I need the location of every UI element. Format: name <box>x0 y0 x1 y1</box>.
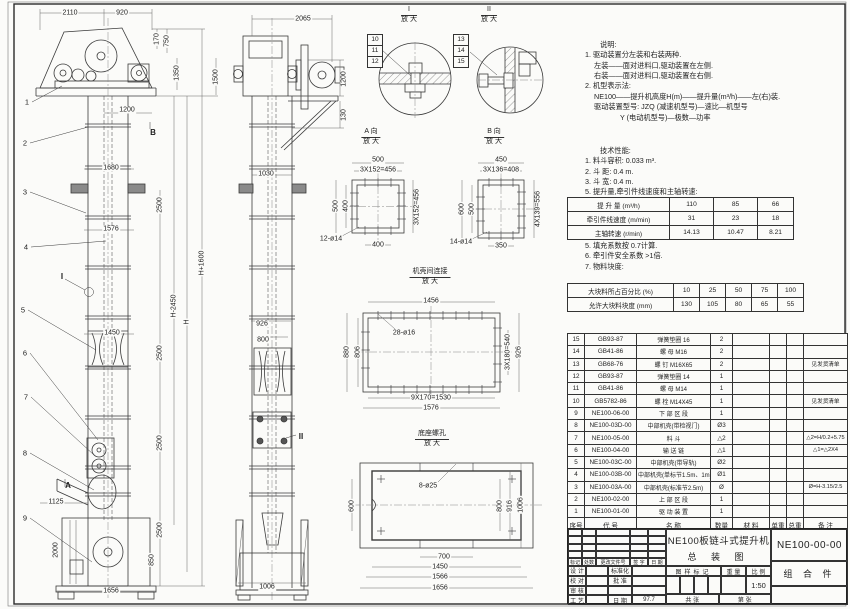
bom-row: 10 GB5782-86 螺 栓 M14X45 1 见发货清单 <box>568 395 848 407</box>
section-mark-label: I <box>60 273 64 281</box>
casing-joint-detail <box>347 302 519 408</box>
bom-unit-weight <box>770 444 787 456</box>
bom-qty: 1 <box>711 407 733 419</box>
weight-value <box>721 576 746 594</box>
bom-note <box>804 407 848 419</box>
detail-title: I 放 大 <box>401 6 417 25</box>
mark-header: 图样标记 <box>666 566 721 576</box>
dim-label: 2065 <box>294 16 312 23</box>
note-line: NE100——提升机高度H(m)——提升量(m³/h)——左(右)装. <box>594 92 780 102</box>
sign-label: 批 准 <box>608 576 632 586</box>
drawing-sheet: 2110 920 170 750 1350 1500 1200 B 1680 2… <box>0 0 850 609</box>
bom-row: 7 NE100-05-00 料 斗 △2 △2=H/0.2+5.75 <box>568 432 848 444</box>
balloon-box: 15 <box>453 56 469 68</box>
bom-code: NE100-05-00 <box>585 432 637 444</box>
detail-title: 机壳间连接 放 大 <box>410 268 451 287</box>
dim-label: 1656 <box>102 588 120 595</box>
bom-material <box>733 346 770 358</box>
revision-cell <box>648 529 666 536</box>
dim-label: 500 <box>371 157 385 164</box>
sign-label: 标准化 <box>608 566 632 576</box>
bom-material <box>733 493 770 505</box>
lump-cell: 55 <box>778 298 804 312</box>
dim-label: 3X136=408 <box>482 167 520 174</box>
bom-no: 2 <box>568 493 585 505</box>
tech-line: 6. 牵引件安全系数 >1倍. <box>585 251 663 261</box>
dim-label: 850 <box>149 553 156 567</box>
bom-name: 中部机壳(单标节1.5m、1m) <box>637 469 711 481</box>
bom-row: 11 GB41-86 螺 母 M14 1 <box>568 383 848 395</box>
bom-no: 13 <box>568 358 585 370</box>
bom-row: 8 NE100-03D-00 中部机壳(带检视门) Ø3 <box>568 420 848 432</box>
revision-cell <box>596 536 630 543</box>
balloon-box: 12 <box>367 56 383 68</box>
tech-notes-after: 5. 填充系数按 0.7计算. 6. 牵引件安全系数 >1倍. 7. 物料块度: <box>580 241 663 272</box>
dim-label: 916 <box>507 499 514 513</box>
bom-qty: △1 <box>711 444 733 456</box>
dim-label: 4X139=556 <box>535 190 542 228</box>
sign-cell <box>586 586 608 596</box>
bom-code: GB41-86 <box>585 346 637 358</box>
bom-no: 12 <box>568 370 585 382</box>
lump-cell: 允许大块料块度 (mm) <box>568 298 674 312</box>
revision-cell <box>568 529 582 536</box>
bom-qty: 1 <box>711 395 733 407</box>
bom-note <box>804 506 848 518</box>
bom-total-weight <box>787 444 804 456</box>
lump-cell: 大块料所占百分比 (%) <box>568 284 674 298</box>
dim-label: 1656 <box>431 585 449 592</box>
dim-label: 1450 <box>103 330 121 337</box>
dim-label: 1006 <box>258 584 276 591</box>
bom-name: 中部机壳(标准节2.5m) <box>637 481 711 493</box>
front-view <box>28 9 218 599</box>
revision-cell <box>648 536 666 543</box>
perf-cell: 8.21 <box>758 226 794 240</box>
dim-label: 450 <box>494 157 508 164</box>
bom-name: 弹簧垫圈 14 <box>637 370 711 382</box>
dim-label: 600 <box>349 499 356 513</box>
dim-label: H-2450 <box>171 294 178 319</box>
bom-row: 13 GB68-76 螺 钉 M16X65 2 见发货清单 <box>568 358 848 370</box>
dim-label: 1200 <box>118 107 136 114</box>
balloon-label: 1 <box>25 98 29 106</box>
sign-label: 审 核 <box>568 586 586 596</box>
bom-material <box>733 358 770 370</box>
lump-cell: 105 <box>700 298 726 312</box>
dim-label: 1576 <box>422 405 440 412</box>
bom-row: 15 GB93-87 弹簧垫圈 16 2 <box>568 334 848 346</box>
notes-heading: 说明: <box>600 40 780 50</box>
bom-material <box>733 506 770 518</box>
bom-no: 14 <box>568 346 585 358</box>
drawing-title-line1: NE100板链斗式提升机 <box>668 533 770 547</box>
bom-name: 料 斗 <box>637 432 711 444</box>
detail-ii <box>470 47 543 113</box>
bom-code: NE100-06-00 <box>585 407 637 419</box>
bom-total-weight <box>787 481 804 493</box>
bom-material <box>733 456 770 468</box>
sheet-number: 第 张 <box>719 594 772 605</box>
bom-total-weight <box>787 346 804 358</box>
bom-material <box>733 395 770 407</box>
dim-label: 2110 <box>61 10 78 17</box>
tech-panel: 技术性能: 1. 料斗容积: 0.033 m³. 2. 斗 距: 0.4 m. … <box>580 146 698 198</box>
table-row: 提 升 量 (m³/h) 110 85 66 <box>568 198 794 212</box>
dim-label: 500 <box>469 202 476 216</box>
perf-cell: 23 <box>714 212 758 226</box>
table-row: 主轴转速 (r/min) 14.13 10.47 8.21 <box>568 226 794 240</box>
dim-label: 28-ø16 <box>392 330 416 337</box>
dim-label: 800 <box>256 337 270 344</box>
bom-no: 11 <box>568 383 585 395</box>
bom-material <box>733 444 770 456</box>
bom-row: 1 NE100-01-00 驱 动 装 置 1 <box>568 506 848 518</box>
dim-label: 130 <box>341 108 348 122</box>
bom-total-weight <box>787 358 804 370</box>
sign-cell <box>632 576 666 586</box>
bom-unit-weight <box>770 395 787 407</box>
bom-no: 6 <box>568 444 585 456</box>
dim-label: 1500 <box>213 68 220 86</box>
bom-unit-weight <box>770 506 787 518</box>
bom-code: GB93-87 <box>585 370 637 382</box>
tech-heading: 技术性能: <box>600 146 698 156</box>
revision-cell <box>648 544 666 551</box>
lump-cell: 80 <box>726 298 752 312</box>
bom-total-weight <box>787 493 804 505</box>
bom-code: GB93-87 <box>585 334 637 346</box>
revision-cell <box>568 551 582 558</box>
bom-no: 1 <box>568 506 585 518</box>
dim-label: 14-ø14 <box>449 239 473 246</box>
bom-qty: 2 <box>711 358 733 370</box>
dim-label: 2500 <box>157 521 164 539</box>
lump-cell: 100 <box>778 284 804 298</box>
detail-i <box>379 42 451 118</box>
empty-cell <box>771 586 848 605</box>
revision-cell <box>596 529 630 536</box>
bom-unit-weight <box>770 358 787 370</box>
bom-total-weight <box>787 469 804 481</box>
drawing-title: NE100板链斗式提升机 总 装 图 <box>666 529 771 566</box>
perf-cell: 提 升 量 (m³/h) <box>568 198 670 212</box>
dim-label: 400 <box>343 199 350 213</box>
bom-qty: 1 <box>711 493 733 505</box>
bom-total-weight <box>787 383 804 395</box>
bom-code: GB68-76 <box>585 358 637 370</box>
bom-note <box>804 334 848 346</box>
bom-name: 螺 钉 M16X65 <box>637 358 711 370</box>
revision-cell <box>582 536 596 543</box>
detail-subtitle: 放 大 <box>422 278 438 285</box>
balloon-label: 6 <box>23 349 27 357</box>
bom-unit-weight <box>770 432 787 444</box>
note-line: Y (电动机型号)—极数—功率 <box>620 113 780 123</box>
bom-code: NE100-03A-00 <box>585 481 637 493</box>
bom-row: 2 NE100-02-00 上 部 区 段 1 <box>568 493 848 505</box>
revision-cell <box>582 529 596 536</box>
bom-code: NE100-04-00 <box>585 444 637 456</box>
perf-cell: 110 <box>670 198 714 212</box>
bom-code: GB41-86 <box>585 383 637 395</box>
dim-label: 9X170=1530 <box>410 395 452 402</box>
bom-total-weight <box>787 334 804 346</box>
bom-no: 4 <box>568 469 585 481</box>
bom-qty: 1 <box>711 506 733 518</box>
mark-box <box>666 576 680 594</box>
bom-code: NE100-02-00 <box>585 493 637 505</box>
bom-note <box>804 370 848 382</box>
table-row: 允许大块料块度 (mm) 130 105 80 65 55 <box>568 298 804 312</box>
bom-qty: 1 <box>711 370 733 382</box>
revision-cell <box>630 544 648 551</box>
perf-cell: 主轴转速 (r/min) <box>568 226 670 240</box>
revision-cell <box>648 551 666 558</box>
drawing-number: NE100-00-00 <box>771 529 848 561</box>
perf-cell: 66 <box>758 198 794 212</box>
sign-cell <box>586 595 608 605</box>
dim-label: 8-ø25 <box>418 483 438 490</box>
bom-note <box>804 420 848 432</box>
tech-line: 1. 料斗容积: 0.033 m³. <box>585 156 698 166</box>
bom-qty: 1 <box>711 383 733 395</box>
dim-label: 800 <box>497 499 504 513</box>
revision-cell <box>596 551 630 558</box>
bom-note: 见发货清单 <box>804 358 848 370</box>
lump-cell: 75 <box>752 284 778 298</box>
dim-label: 2500 <box>157 434 164 452</box>
revision-cell <box>630 536 648 543</box>
sign-cell <box>586 566 608 576</box>
bom-total-weight <box>787 420 804 432</box>
bom-qty: Ø <box>711 481 733 493</box>
lump-cell: 10 <box>674 284 700 298</box>
dim-label: 926 <box>516 345 523 359</box>
sign-label: 设 计 <box>568 566 586 576</box>
part-type: 组 合 件 <box>771 561 848 586</box>
bom-code: GB5782-86 <box>585 395 637 407</box>
bom-unit-weight <box>770 407 787 419</box>
bom-name: 螺 栓 M14X45 <box>637 395 711 407</box>
bom-material <box>733 432 770 444</box>
bom-no: 8 <box>568 420 585 432</box>
mark-box <box>680 576 694 594</box>
view-mark-label: A <box>64 482 72 490</box>
balloon-label: 3 <box>23 188 27 196</box>
note-line: 左装——面对进料口,驱动装置在左侧. <box>594 61 780 71</box>
dim-label: 500 <box>333 199 340 213</box>
dim-label: 350 <box>494 243 508 250</box>
bom-code: NE100-03B-00 <box>585 469 637 481</box>
side-view <box>234 15 345 600</box>
bom-no: 10 <box>568 395 585 407</box>
note-line: 2. 机型表示法: <box>585 81 780 91</box>
detail-title: A 向 放 大 <box>361 128 380 147</box>
section-mark-label: II <box>298 433 304 441</box>
lump-cell: 50 <box>726 284 752 298</box>
bom-row: 5 NE100-03C-00 中部机壳(带导轨) Ø2 <box>568 456 848 468</box>
detail-subtitle: 放 大 <box>401 16 417 23</box>
mark-box <box>708 576 721 594</box>
bom-no: 3 <box>568 481 585 493</box>
bom-qty: 2 <box>711 346 733 358</box>
bom-name: 驱 动 装 置 <box>637 506 711 518</box>
revision-cell <box>568 536 582 543</box>
sheet-count: 共 张 <box>666 594 719 605</box>
bom-note: △2=H/0.2+5.75 <box>804 432 848 444</box>
dim-label: 1450 <box>431 564 449 571</box>
bom-name: 螺 母 M14 <box>637 383 711 395</box>
revision-cell <box>630 551 648 558</box>
sign-label: 日 期 <box>608 595 632 605</box>
dim-label: 1030 <box>257 171 275 178</box>
revision-cell <box>568 544 582 551</box>
bom-table: 15 GB93-87 弹簧垫圈 16 2 14 GB41-86 螺 母 M16 … <box>567 333 848 532</box>
weight-header: 重 量 <box>721 566 746 576</box>
tech-line: 5. 填充系数按 0.7计算. <box>585 241 663 251</box>
dim-label: 2500 <box>157 196 164 214</box>
dim-label: 700 <box>437 554 451 561</box>
bom-name: 中部机壳(带检视门) <box>637 420 711 432</box>
bom-no: 15 <box>568 334 585 346</box>
bom-material <box>733 334 770 346</box>
revision-header: 签 字 <box>630 558 648 566</box>
bom-name: 中部机壳(带导轨) <box>637 456 711 468</box>
bom-total-weight <box>787 432 804 444</box>
bom-name: 下 部 区 段 <box>637 407 711 419</box>
revision-header: 标记 <box>568 558 582 566</box>
revision-cell <box>596 544 630 551</box>
dim-label: 1125 <box>47 499 64 506</box>
revision-header: 更改文件号 <box>596 558 630 566</box>
bom-material <box>733 481 770 493</box>
bom-no: 9 <box>568 407 585 419</box>
dim-label: 920 <box>115 10 129 17</box>
detail-title: II 放 大 <box>481 6 497 25</box>
bom-row: 9 NE100-06-00 下 部 区 段 1 <box>568 407 848 419</box>
bom-code: NE100-01-00 <box>585 506 637 518</box>
bom-row: 6 NE100-04-00 输 送 链 △1 △1=△2X4 <box>568 444 848 456</box>
sign-label: 工 艺 <box>568 595 586 605</box>
view-mark-label: B <box>149 129 157 137</box>
bom-total-weight <box>787 407 804 419</box>
detail-title-text: 机壳间连接 <box>410 268 451 278</box>
dim-label: 1456 <box>422 298 440 305</box>
dim-label: 1566 <box>431 574 449 581</box>
lump-size-table: 大块料所占百分比 (%) 10 25 50 75 100 允许大块料块度 (mm… <box>567 283 804 312</box>
revision-cell <box>582 551 596 558</box>
detail-subtitle: 放 大 <box>363 138 379 145</box>
dim-label: 2000 <box>53 541 60 559</box>
dim-label: H+1600 <box>199 250 206 277</box>
detail-subtitle: 放 大 <box>481 16 497 23</box>
drawing-title-line2: 总 装 图 <box>687 550 749 563</box>
dim-label: 600 <box>459 202 466 216</box>
bom-note <box>804 469 848 481</box>
bom-note: △1=△2X4 <box>804 444 848 456</box>
dim-label: 1006 <box>518 496 525 514</box>
bom-qty: Ø2 <box>711 456 733 468</box>
bom-unit-weight <box>770 420 787 432</box>
bom-note <box>804 346 848 358</box>
bom-unit-weight <box>770 493 787 505</box>
dim-label: 3X180=540 <box>505 333 512 371</box>
bom-unit-weight <box>770 334 787 346</box>
bom-no: 5 <box>568 456 585 468</box>
revision-cell <box>630 529 648 536</box>
bom-unit-weight <box>770 481 787 493</box>
bom-name: 上 部 区 段 <box>637 493 711 505</box>
bom-note <box>804 456 848 468</box>
bom-name: 输 送 链 <box>637 444 711 456</box>
bom-name: 弹簧垫圈 16 <box>637 334 711 346</box>
detail-title-text: A 向 <box>361 128 380 138</box>
dim-label: 170 <box>154 32 161 46</box>
bom-note <box>804 383 848 395</box>
bom-no: 7 <box>568 432 585 444</box>
balloon-label: 8 <box>23 449 27 457</box>
bom-material <box>733 407 770 419</box>
dim-label: 926 <box>255 321 269 328</box>
bom-unit-weight <box>770 346 787 358</box>
bom-material <box>733 420 770 432</box>
title-block: 标记 处数 更改文件号 签 字 日 期 设 计 标准化 校 对 批 准 审 核 … <box>567 528 847 604</box>
bom-row: 14 GB41-86 螺 母 M16 2 <box>568 346 848 358</box>
bom-qty: 2 <box>711 334 733 346</box>
bom-row: 12 GB93-87 弹簧垫圈 14 1 <box>568 370 848 382</box>
dim-label: 1200 <box>341 70 348 88</box>
bom-material <box>733 383 770 395</box>
bom-total-weight <box>787 456 804 468</box>
perf-cell: 31 <box>670 212 714 226</box>
detail-subtitle: 放 大 <box>486 138 502 145</box>
bom-note: 见发货清单 <box>804 395 848 407</box>
detail-title-text: 底座螺孔 <box>415 430 449 440</box>
notes-panel: 说明: 1. 驱动装置分左装和右装两种. 左装——面对进料口,驱动装置在左侧. … <box>580 40 780 123</box>
dim-label: 806 <box>355 345 362 359</box>
sign-cell <box>632 566 666 576</box>
bom-row: 3 NE100-03A-00 中部机壳(标准节2.5m) Ø Ø=H-3.15/… <box>568 481 848 493</box>
scale-value: 1:50 <box>746 576 771 594</box>
tech-line: 3. 斗 宽: 0.4 m. <box>585 177 698 187</box>
scale-header: 比 例 <box>746 566 771 576</box>
bom-qty: Ø1 <box>711 469 733 481</box>
sign-cell <box>586 576 608 586</box>
bom-unit-weight <box>770 456 787 468</box>
bom-name: 螺 母 M16 <box>637 346 711 358</box>
dim-label: 1350 <box>174 64 181 82</box>
perf-cell: 10.47 <box>714 226 758 240</box>
sign-cell <box>632 586 666 596</box>
revision-cell <box>582 544 596 551</box>
detail-title-text: I <box>401 6 417 16</box>
bom-material <box>733 370 770 382</box>
balloon-label: 2 <box>23 139 27 147</box>
balloon-label: 7 <box>24 393 28 401</box>
note-line: 右装——面对进料口,驱动装置在右侧. <box>594 71 780 81</box>
bom-note <box>804 493 848 505</box>
performance-table: 提 升 量 (m³/h) 110 85 66 牵引件线速度 (m/min) 31… <box>567 197 794 240</box>
detail-title-text: II <box>481 6 497 16</box>
bom-total-weight <box>787 506 804 518</box>
tech-line: 7. 物料块度: <box>585 262 663 272</box>
bom-row: 4 NE100-03B-00 中部机壳(单标节1.5m、1m) Ø1 <box>568 469 848 481</box>
sign-label <box>608 586 632 596</box>
sign-label: 校 对 <box>568 576 586 586</box>
table-row: 大块料所占百分比 (%) 10 25 50 75 100 <box>568 284 804 298</box>
balloon-label: 9 <box>23 514 27 522</box>
